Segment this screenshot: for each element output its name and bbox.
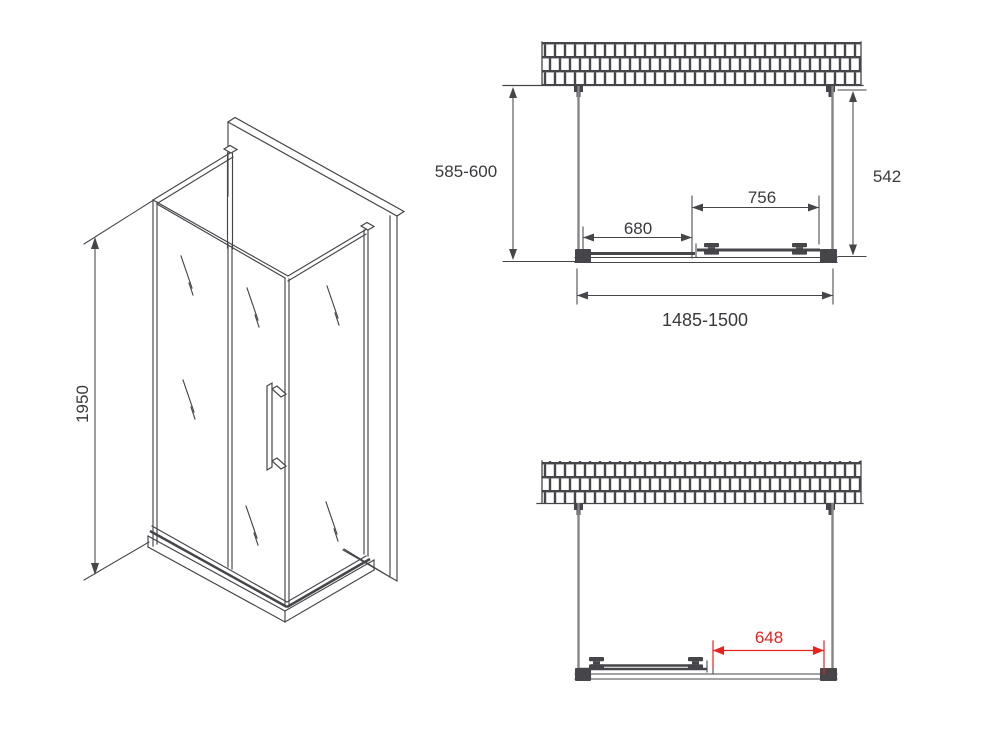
total-width-label: 1485-1500 [662,310,748,330]
door-span-label: 756 [748,188,776,207]
corner-profile-right [820,668,837,681]
wall-hatch [542,461,861,503]
canvas-background [0,0,1000,753]
drawing-canvas: 1950 585-600 [0,0,1000,753]
corner-profile-right [820,249,837,263]
wall-section [537,461,863,504]
wall-section [503,42,863,86]
side-depth-label: 585-600 [435,162,497,181]
height-dimension-label: 1950 [73,385,92,423]
inner-depth-label: 542 [873,167,901,186]
corner-profile-left [575,668,591,681]
fixed-span-label: 680 [624,219,652,238]
entry-width-label: 648 [755,628,783,647]
technical-drawing: 1950 585-600 [0,0,1000,753]
wall-hatch [542,42,861,85]
